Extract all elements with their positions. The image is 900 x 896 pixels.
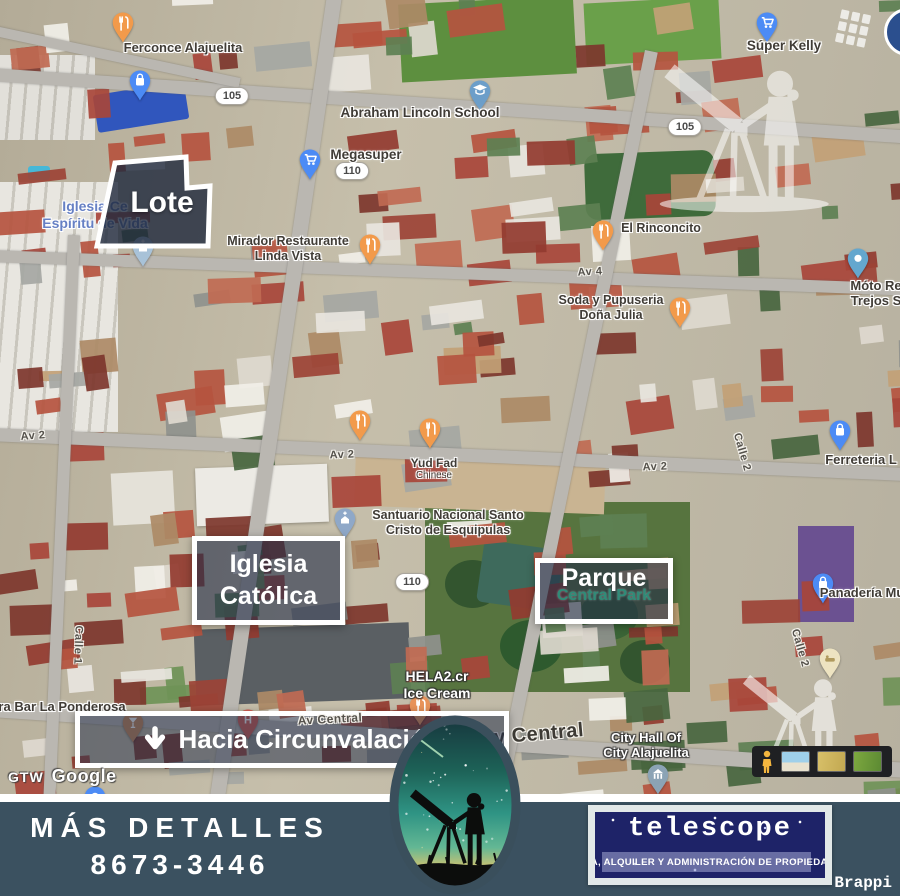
rooftop bbox=[67, 665, 95, 693]
rooftop bbox=[686, 721, 727, 744]
rooftop bbox=[892, 398, 900, 428]
rooftop bbox=[18, 168, 67, 184]
rooftop bbox=[564, 666, 610, 684]
rooftop bbox=[575, 44, 605, 67]
telescope-brand-inner: telescope VENTA, ALQUILER Y ADMINISTRACI… bbox=[595, 812, 825, 878]
rooftop bbox=[761, 386, 793, 402]
rooftop bbox=[9, 45, 49, 71]
rooftop bbox=[35, 398, 62, 415]
rooftop bbox=[552, 789, 606, 794]
rooftop bbox=[639, 383, 657, 403]
rooftop bbox=[501, 396, 551, 424]
map-pin-bank[interactable] bbox=[646, 763, 671, 794]
street-label: Av 4 bbox=[577, 265, 602, 278]
rooftop bbox=[437, 354, 477, 385]
rooftop bbox=[579, 515, 613, 538]
rooftop bbox=[377, 186, 422, 206]
telescope-brand-box: telescope VENTA, ALQUILER Y ADMINISTRACI… bbox=[588, 805, 832, 885]
rooftop bbox=[172, 0, 213, 6]
iglesia-line2: Católica bbox=[197, 581, 340, 612]
rooftop bbox=[160, 624, 202, 640]
street-label: Calle 1 bbox=[71, 625, 84, 664]
map-place-label: Abraham Lincoln School bbox=[340, 105, 499, 121]
map-place-label: Ferreteria L bbox=[825, 452, 897, 467]
rooftop bbox=[316, 311, 366, 334]
iglesia-catolica-box: Iglesia Católica bbox=[192, 536, 345, 625]
rooftop bbox=[125, 586, 180, 617]
map-pin-restaurant[interactable] bbox=[348, 409, 373, 447]
telescope-circle-logo bbox=[388, 714, 522, 896]
rooftop bbox=[641, 650, 669, 686]
rooftop bbox=[120, 668, 171, 683]
map-controls-bar bbox=[752, 746, 892, 777]
map-place-label: Yud FadChinese bbox=[411, 456, 458, 482]
rooftop bbox=[226, 125, 254, 148]
map-place-label: City Hall OfCity Alajuelita bbox=[603, 730, 688, 761]
brand-tagline-band: VENTA, ALQUILER Y ADMINISTRACIÓN DE PROP… bbox=[602, 852, 811, 872]
google-logo: Google bbox=[52, 766, 117, 787]
map-pin-restaurant[interactable] bbox=[668, 296, 693, 334]
rooftop bbox=[799, 409, 829, 423]
rooftop bbox=[487, 138, 521, 157]
rooftop bbox=[509, 197, 553, 217]
map-place-label: Megasuper bbox=[330, 147, 401, 163]
rooftop bbox=[344, 604, 388, 625]
stargazer-logo-icon bbox=[388, 714, 522, 896]
map-place-label: Soda y PupuseriaDoña Julia bbox=[559, 293, 664, 323]
parque-box: Parque Central Park bbox=[535, 558, 673, 624]
map-place-label: HELA2.crIce Cream bbox=[404, 668, 471, 701]
map-attribution: GTW Google bbox=[8, 766, 117, 787]
lot-label: Lote bbox=[112, 186, 212, 220]
rooftop bbox=[208, 277, 262, 304]
map-type-thumbnail[interactable] bbox=[853, 751, 882, 772]
credit-watermark: Brappi bbox=[834, 874, 892, 892]
rooftop bbox=[624, 688, 671, 723]
map-pin-restaurant[interactable] bbox=[418, 417, 443, 455]
map-place-label: Santuario Nacional SantoCristo de Esquip… bbox=[372, 508, 523, 538]
rooftop bbox=[454, 156, 488, 178]
rooftop bbox=[859, 325, 884, 345]
attribution-gtw: GTW bbox=[8, 769, 44, 785]
map-pin-restaurant[interactable] bbox=[358, 233, 383, 271]
rooftop bbox=[738, 247, 760, 277]
brand-tagline: VENTA, ALQUILER Y ADMINISTRACIÓN DE PROP… bbox=[595, 857, 825, 868]
rooftop bbox=[386, 36, 413, 55]
rooftop bbox=[408, 21, 438, 58]
brand-name: telescope bbox=[595, 814, 825, 844]
street-label: Av 2 bbox=[329, 449, 354, 462]
rooftop bbox=[856, 411, 874, 447]
down-arrow-icon bbox=[143, 726, 167, 754]
rooftop bbox=[165, 400, 187, 424]
map-pin-cart[interactable] bbox=[298, 148, 323, 186]
route-badge: 105 bbox=[215, 87, 249, 105]
map-place-label: El Rinconcito bbox=[621, 221, 701, 236]
rooftop bbox=[771, 435, 820, 460]
rooftop bbox=[517, 293, 545, 326]
details-label: MÁS DETALLES bbox=[0, 812, 360, 844]
street-label: Av 2 bbox=[642, 461, 667, 474]
route-badge: 110 bbox=[395, 573, 429, 591]
rooftop bbox=[692, 378, 718, 410]
rooftop bbox=[477, 332, 504, 347]
rooftop bbox=[429, 300, 484, 326]
phone-number: 8673-3446 bbox=[0, 849, 360, 881]
map-pin-restaurant[interactable] bbox=[591, 219, 616, 257]
rooftop bbox=[381, 319, 413, 356]
rooftop bbox=[502, 221, 548, 254]
map-place-label: Mirador RestauranteLinda Vista bbox=[227, 234, 349, 264]
rooftop bbox=[760, 348, 783, 381]
iglesia-line1: Iglesia bbox=[197, 549, 340, 580]
rooftop bbox=[332, 475, 382, 508]
real-estate-flyer: 105105110110 Av 4Av 2Av 2Av 2Av CentralA… bbox=[0, 0, 900, 896]
map-place-label: Ferconce Alajuelita bbox=[124, 40, 243, 55]
rooftop bbox=[447, 3, 507, 38]
map-place-label: Panadería Mu bbox=[820, 585, 900, 600]
rooftop bbox=[883, 676, 900, 705]
rooftop bbox=[150, 513, 179, 547]
rooftop bbox=[603, 66, 635, 101]
route-badge: 110 bbox=[335, 162, 369, 180]
rooftop bbox=[292, 353, 340, 379]
satellite-map[interactable]: 105105110110 Av 4Av 2Av 2Av 2Av CentralA… bbox=[0, 0, 900, 794]
rooftop bbox=[82, 354, 110, 391]
rooftop bbox=[224, 383, 264, 408]
rooftop bbox=[30, 543, 50, 560]
map-pin-lodging[interactable] bbox=[818, 647, 843, 685]
rooftop bbox=[254, 41, 312, 72]
route-badge: 105 bbox=[668, 118, 702, 136]
contact-details: MÁS DETALLES 8673-3446 bbox=[0, 812, 360, 881]
rooftop bbox=[891, 180, 900, 200]
rooftop bbox=[385, 0, 429, 29]
rooftop bbox=[133, 133, 165, 147]
rooftop bbox=[17, 367, 44, 389]
rooftop bbox=[527, 140, 576, 166]
rooftop bbox=[742, 599, 800, 624]
map-type-thumbnail[interactable] bbox=[781, 751, 810, 772]
street-label: Av 2 bbox=[20, 429, 46, 443]
pegman-icon[interactable] bbox=[760, 750, 774, 774]
rooftop bbox=[0, 569, 38, 595]
map-type-thumbnail[interactable] bbox=[817, 751, 846, 772]
rooftop bbox=[864, 110, 899, 126]
map-pin-bag[interactable] bbox=[128, 69, 153, 107]
rooftop bbox=[578, 758, 628, 775]
rooftop bbox=[588, 698, 625, 722]
rooftop bbox=[64, 523, 108, 550]
map-place-label: Súper Kelly bbox=[747, 38, 821, 54]
map-place-label: Móto ReTrejos S bbox=[850, 278, 900, 309]
rooftop bbox=[87, 88, 111, 118]
rooftop bbox=[887, 369, 900, 387]
rooftop bbox=[644, 626, 662, 645]
parque-subtitle: Central Park bbox=[540, 587, 668, 605]
rooftop bbox=[0, 210, 46, 236]
rooftop bbox=[873, 642, 900, 660]
rooftop bbox=[722, 383, 743, 408]
rooftop bbox=[87, 593, 112, 608]
